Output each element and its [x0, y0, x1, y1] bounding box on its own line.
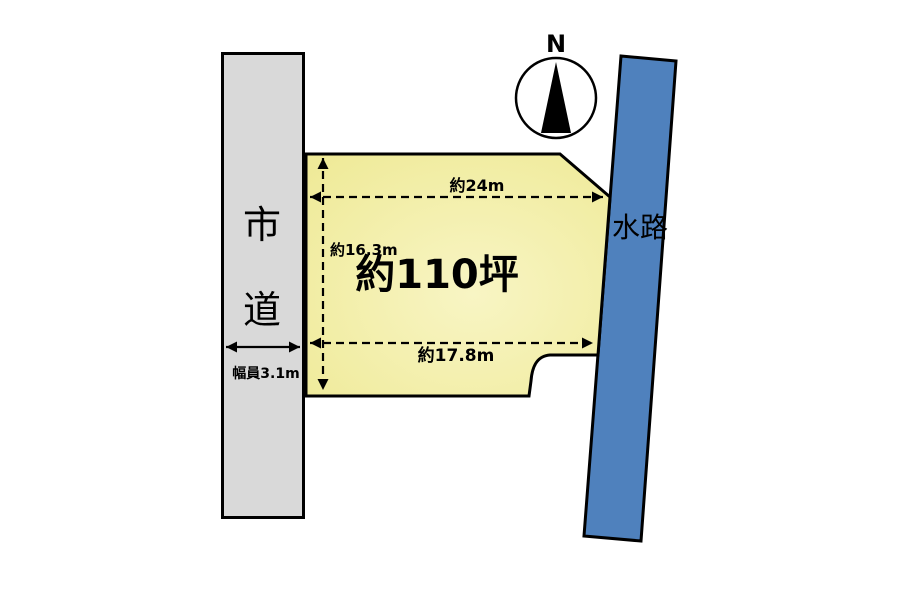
compass-north-label: N: [546, 30, 566, 58]
city-road-label-char-1: 市: [243, 203, 281, 247]
waterway-label: 水路: [612, 211, 668, 244]
dim-bottom-label: 約17.8m: [418, 345, 495, 366]
road-width-label: 幅員3.1m: [232, 365, 299, 382]
dim-top-label: 約24m: [450, 176, 505, 195]
site-plan-drawing: 約24m 約16.3m 約17.8m 約110坪 幅員3.1m 市 道 水路 N: [0, 0, 900, 600]
site-plan-canvas: 約24m 約16.3m 約17.8m 約110坪 幅員3.1m 市 道 水路 N: [0, 0, 900, 600]
city-road-label-char-2: 道: [243, 288, 281, 332]
city-road-shape: [223, 54, 304, 518]
plot-area-label: 約110坪: [355, 252, 519, 298]
